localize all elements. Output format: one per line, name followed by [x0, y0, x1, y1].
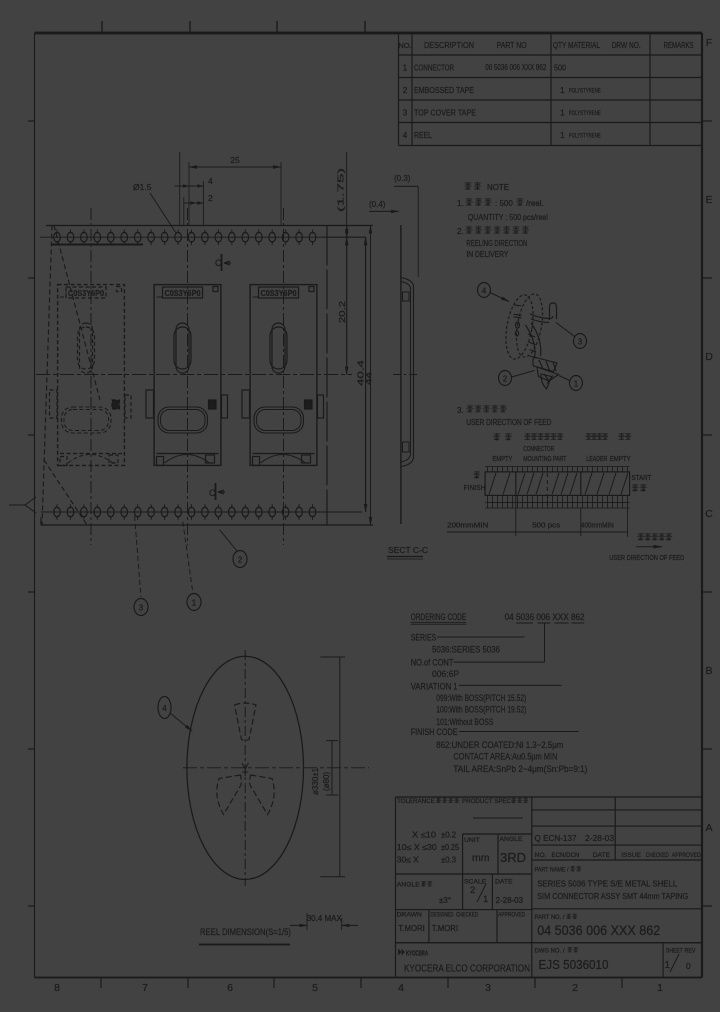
svg-text:1: 1	[665, 960, 671, 971]
svg-text:(ø80): (ø80)	[322, 772, 331, 791]
svg-text:APPROVED: APPROVED	[672, 852, 701, 859]
svg-text:100:With BOSS(PITCH 19.52): 100:With BOSS(PITCH 19.52)	[436, 704, 526, 714]
svg-text:(1.75): (1.75)	[337, 167, 346, 212]
svg-text:APPROVED: APPROVED	[498, 912, 525, 919]
svg-text:POLYSTYRENE: POLYSTYRENE	[569, 88, 601, 95]
svg-text:1.: 1.	[457, 199, 464, 208]
svg-text:Ø1.5: Ø1.5	[133, 182, 152, 192]
svg-text:25: 25	[230, 155, 240, 165]
svg-text:USER DIRECTION OF FEED: USER DIRECTION OF FEED	[609, 553, 684, 562]
svg-text:DATE: DATE	[495, 879, 513, 886]
svg-text:POLYSTYRENE: POLYSTYRENE	[569, 133, 601, 140]
svg-text:SECT C-C: SECT C-C	[388, 545, 428, 555]
svg-text:KYOCERA: KYOCERA	[406, 949, 428, 958]
svg-text:T.MORI: T.MORI	[398, 924, 424, 933]
svg-text:X ≤10: X ≤10	[412, 831, 437, 840]
svg-text:UNIT: UNIT	[464, 837, 480, 844]
svg-text:3: 3	[139, 604, 144, 613]
svg-text:1: 1	[483, 894, 488, 905]
svg-text:NOTE: NOTE	[487, 183, 509, 192]
svg-text:3: 3	[578, 338, 583, 347]
svg-text:04 5036 006 XXX 862: 04 5036 006 XXX 862	[537, 922, 660, 938]
svg-text:500: 500	[554, 63, 566, 73]
svg-text:T.MORI: T.MORI	[432, 924, 458, 933]
svg-text:00 5036 006 XXX 862: 00 5036 006 XXX 862	[485, 63, 546, 72]
svg-text:NO.of CONT: NO.of CONT	[411, 658, 454, 668]
svg-text:REEL DIMENSION(S=1/5): REEL DIMENSION(S=1/5)	[200, 927, 291, 937]
svg-text:QUANTITY : 500 pcs/reel: QUANTITY : 500 pcs/reel	[468, 213, 548, 222]
svg-text:ORDERING CODE: ORDERING CODE	[411, 612, 467, 622]
svg-text:F: F	[706, 37, 712, 49]
svg-text:1: 1	[657, 982, 663, 994]
svg-text:SERIES: SERIES	[411, 633, 437, 643]
svg-text:3: 3	[485, 982, 491, 994]
svg-text:5: 5	[312, 982, 318, 994]
svg-text:±0.2: ±0.2	[441, 831, 456, 840]
svg-text:10≤ X ≤30: 10≤ X ≤30	[397, 843, 438, 852]
svg-text:PART NO: PART NO	[497, 40, 527, 50]
svg-text:6: 6	[227, 982, 233, 994]
svg-text:C: C	[705, 508, 713, 520]
svg-text:4: 4	[482, 287, 487, 296]
svg-text:TOP COVER TAPE: TOP COVER TAPE	[414, 108, 476, 118]
svg-text:862:UNDER COATED:Ni 1.3~2.5μm: 862:UNDER COATED:Ni 1.3~2.5μm	[436, 740, 563, 750]
svg-text:VARIATION 1: VARIATION 1	[411, 682, 458, 692]
svg-text:SERIES 5036 TYPE S/E METAL SHE: SERIES 5036 TYPE S/E METAL SHELL	[537, 879, 677, 889]
svg-text:A: A	[705, 822, 712, 834]
svg-text:Q ECN-137: Q ECN-137	[535, 834, 577, 843]
svg-text:200mmMIN: 200mmMIN	[447, 521, 488, 530]
svg-text:4: 4	[208, 176, 213, 186]
svg-text:2: 2	[238, 556, 243, 565]
svg-text:EMBOSSED TAPE: EMBOSSED TAPE	[414, 85, 474, 95]
svg-text:0: 0	[686, 961, 691, 971]
svg-text:IN DELIVERY: IN DELIVERY	[466, 250, 509, 259]
svg-text:4: 4	[403, 131, 408, 140]
svg-text:REELING DIRECTION: REELING DIRECTION	[466, 239, 527, 248]
svg-text:101:Without BOSS: 101:Without BOSS	[436, 717, 493, 727]
svg-text:5036:SERIES 5036: 5036:SERIES 5036	[432, 645, 500, 655]
svg-text:(0.3): (0.3)	[394, 174, 411, 183]
svg-text:1: 1	[560, 108, 565, 118]
svg-text:30.4 MAX: 30.4 MAX	[307, 914, 343, 923]
svg-text:1: 1	[403, 64, 408, 73]
svg-text:KYOCERA ELCO CORPORATION: KYOCERA ELCO CORPORATION	[404, 964, 530, 975]
svg-text:2: 2	[208, 193, 213, 203]
svg-text:FINISH CODE: FINISH CODE	[411, 727, 458, 737]
svg-text:QTY MATERIAL: QTY MATERIAL	[553, 41, 600, 50]
svg-text:FINISH: FINISH	[464, 483, 486, 492]
svg-text:POLYSTYRENE: POLYSTYRENE	[569, 110, 601, 117]
svg-text:ANGLE /: ANGLE /	[397, 882, 424, 889]
svg-text:1: 1	[560, 85, 565, 95]
svg-text:400mmMIN: 400mmMIN	[581, 521, 614, 530]
svg-text:EMPTY: EMPTY	[492, 454, 512, 463]
svg-text:099:With BOSS(PITCH 15.52): 099:With BOSS(PITCH 15.52)	[436, 693, 526, 703]
svg-text:7: 7	[142, 982, 148, 994]
svg-text:CONNECTOR: CONNECTOR	[414, 63, 454, 73]
svg-text:REMARKS: REMARKS	[664, 40, 694, 50]
svg-text:DRAWN: DRAWN	[397, 912, 423, 919]
svg-text:006:6P: 006:6P	[432, 669, 459, 679]
svg-text:TOLERANCE /: TOLERANCE /	[397, 798, 438, 805]
svg-text:D: D	[705, 351, 713, 363]
svg-text:EMPTY: EMPTY	[610, 454, 631, 463]
svg-text:SIM CONNECTOR ASSY SMT 44mm TA: SIM CONNECTOR ASSY SMT 44mm TAPING	[537, 891, 688, 901]
svg-text:B: B	[705, 665, 712, 677]
svg-text:START: START	[631, 473, 651, 482]
svg-text:CHECKED: CHECKED	[456, 912, 478, 919]
svg-text:30≤ X: 30≤ X	[397, 856, 420, 865]
svg-text:REEL: REEL	[414, 130, 432, 140]
svg-text:TAIL AREA:SnPb 2~4μm(Sn:Pb=9:1: TAIL AREA:SnPb 2~4μm(Sn:Pb=9:1)	[453, 764, 587, 774]
svg-text:2: 2	[403, 86, 408, 95]
svg-text:: 500: : 500	[495, 199, 513, 208]
svg-text:3.: 3.	[457, 406, 464, 415]
svg-text:DATE: DATE	[593, 852, 611, 859]
svg-text:REV: REV	[685, 948, 697, 955]
svg-text:2: 2	[503, 375, 508, 384]
svg-text:LEADER: LEADER	[586, 454, 607, 463]
svg-text:NO.: NO.	[535, 852, 547, 859]
svg-text:±0.25: ±0.25	[441, 843, 460, 852]
svg-text:1: 1	[192, 599, 197, 608]
svg-text:04 5036 006 XXX 862: 04 5036 006 XXX 862	[505, 612, 585, 622]
svg-text:8: 8	[54, 982, 60, 994]
svg-text:ANGLE: ANGLE	[500, 836, 524, 843]
svg-text:MOUNTING PART: MOUNTING PART	[523, 454, 566, 463]
svg-text:EJS 5036010: EJS 5036010	[539, 958, 609, 972]
svg-text:ECN/DCN: ECN/DCN	[552, 852, 580, 859]
svg-text:SCALE: SCALE	[464, 879, 487, 886]
svg-text:ISSUE: ISSUE	[621, 852, 641, 859]
svg-text:(0.4): (0.4)	[369, 200, 386, 209]
svg-text:44: 44	[365, 371, 374, 385]
svg-text:DESCRIPTION: DESCRIPTION	[424, 40, 474, 50]
svg-text:DESIGNED: DESIGNED	[431, 912, 454, 919]
svg-text:1: 1	[574, 380, 579, 389]
svg-text:±3°: ±3°	[439, 896, 451, 905]
svg-text:/reel.: /reel.	[526, 199, 544, 208]
svg-text:mm: mm	[472, 852, 490, 864]
svg-text:2-28-03: 2-28-03	[585, 834, 614, 843]
svg-text:DWG NO. /: DWG NO. /	[535, 948, 565, 955]
svg-text:2.: 2.	[457, 227, 464, 236]
svg-text:ø330±1: ø330±1	[311, 767, 320, 795]
svg-text:PART NAME /: PART NAME /	[535, 867, 569, 874]
svg-text:500 pcs: 500 pcs	[532, 521, 560, 530]
svg-text:SHEET: SHEET	[666, 948, 683, 955]
svg-text:±0.3: ±0.3	[441, 856, 456, 865]
svg-text:E: E	[705, 194, 712, 206]
svg-text:CONNECTOR: CONNECTOR	[523, 444, 554, 453]
svg-text:4: 4	[398, 982, 404, 994]
svg-text:1: 1	[560, 130, 565, 140]
svg-text:DRW NO.: DRW NO.	[612, 41, 641, 50]
svg-text:2-28-03: 2-28-03	[496, 896, 524, 905]
svg-text:20.2: 20.2	[338, 300, 347, 323]
svg-text:CONTACT AREA:Au0.5μm MIN: CONTACT AREA:Au0.5μm MIN	[453, 751, 557, 761]
svg-text:2: 2	[572, 982, 578, 994]
svg-text:CHECKED: CHECKED	[646, 852, 669, 859]
svg-text:2: 2	[470, 885, 475, 896]
svg-text:NO.: NO.	[398, 41, 411, 50]
svg-text:USER DIRECTION OF FEED: USER DIRECTION OF FEED	[466, 418, 551, 427]
svg-text:3RD: 3RD	[500, 850, 526, 865]
svg-text:4: 4	[162, 704, 167, 713]
svg-text:PART NO. /: PART NO. /	[535, 914, 565, 921]
svg-text:3: 3	[403, 109, 408, 118]
svg-text:PRODUCT SPEC /: PRODUCT SPEC /	[462, 798, 515, 805]
